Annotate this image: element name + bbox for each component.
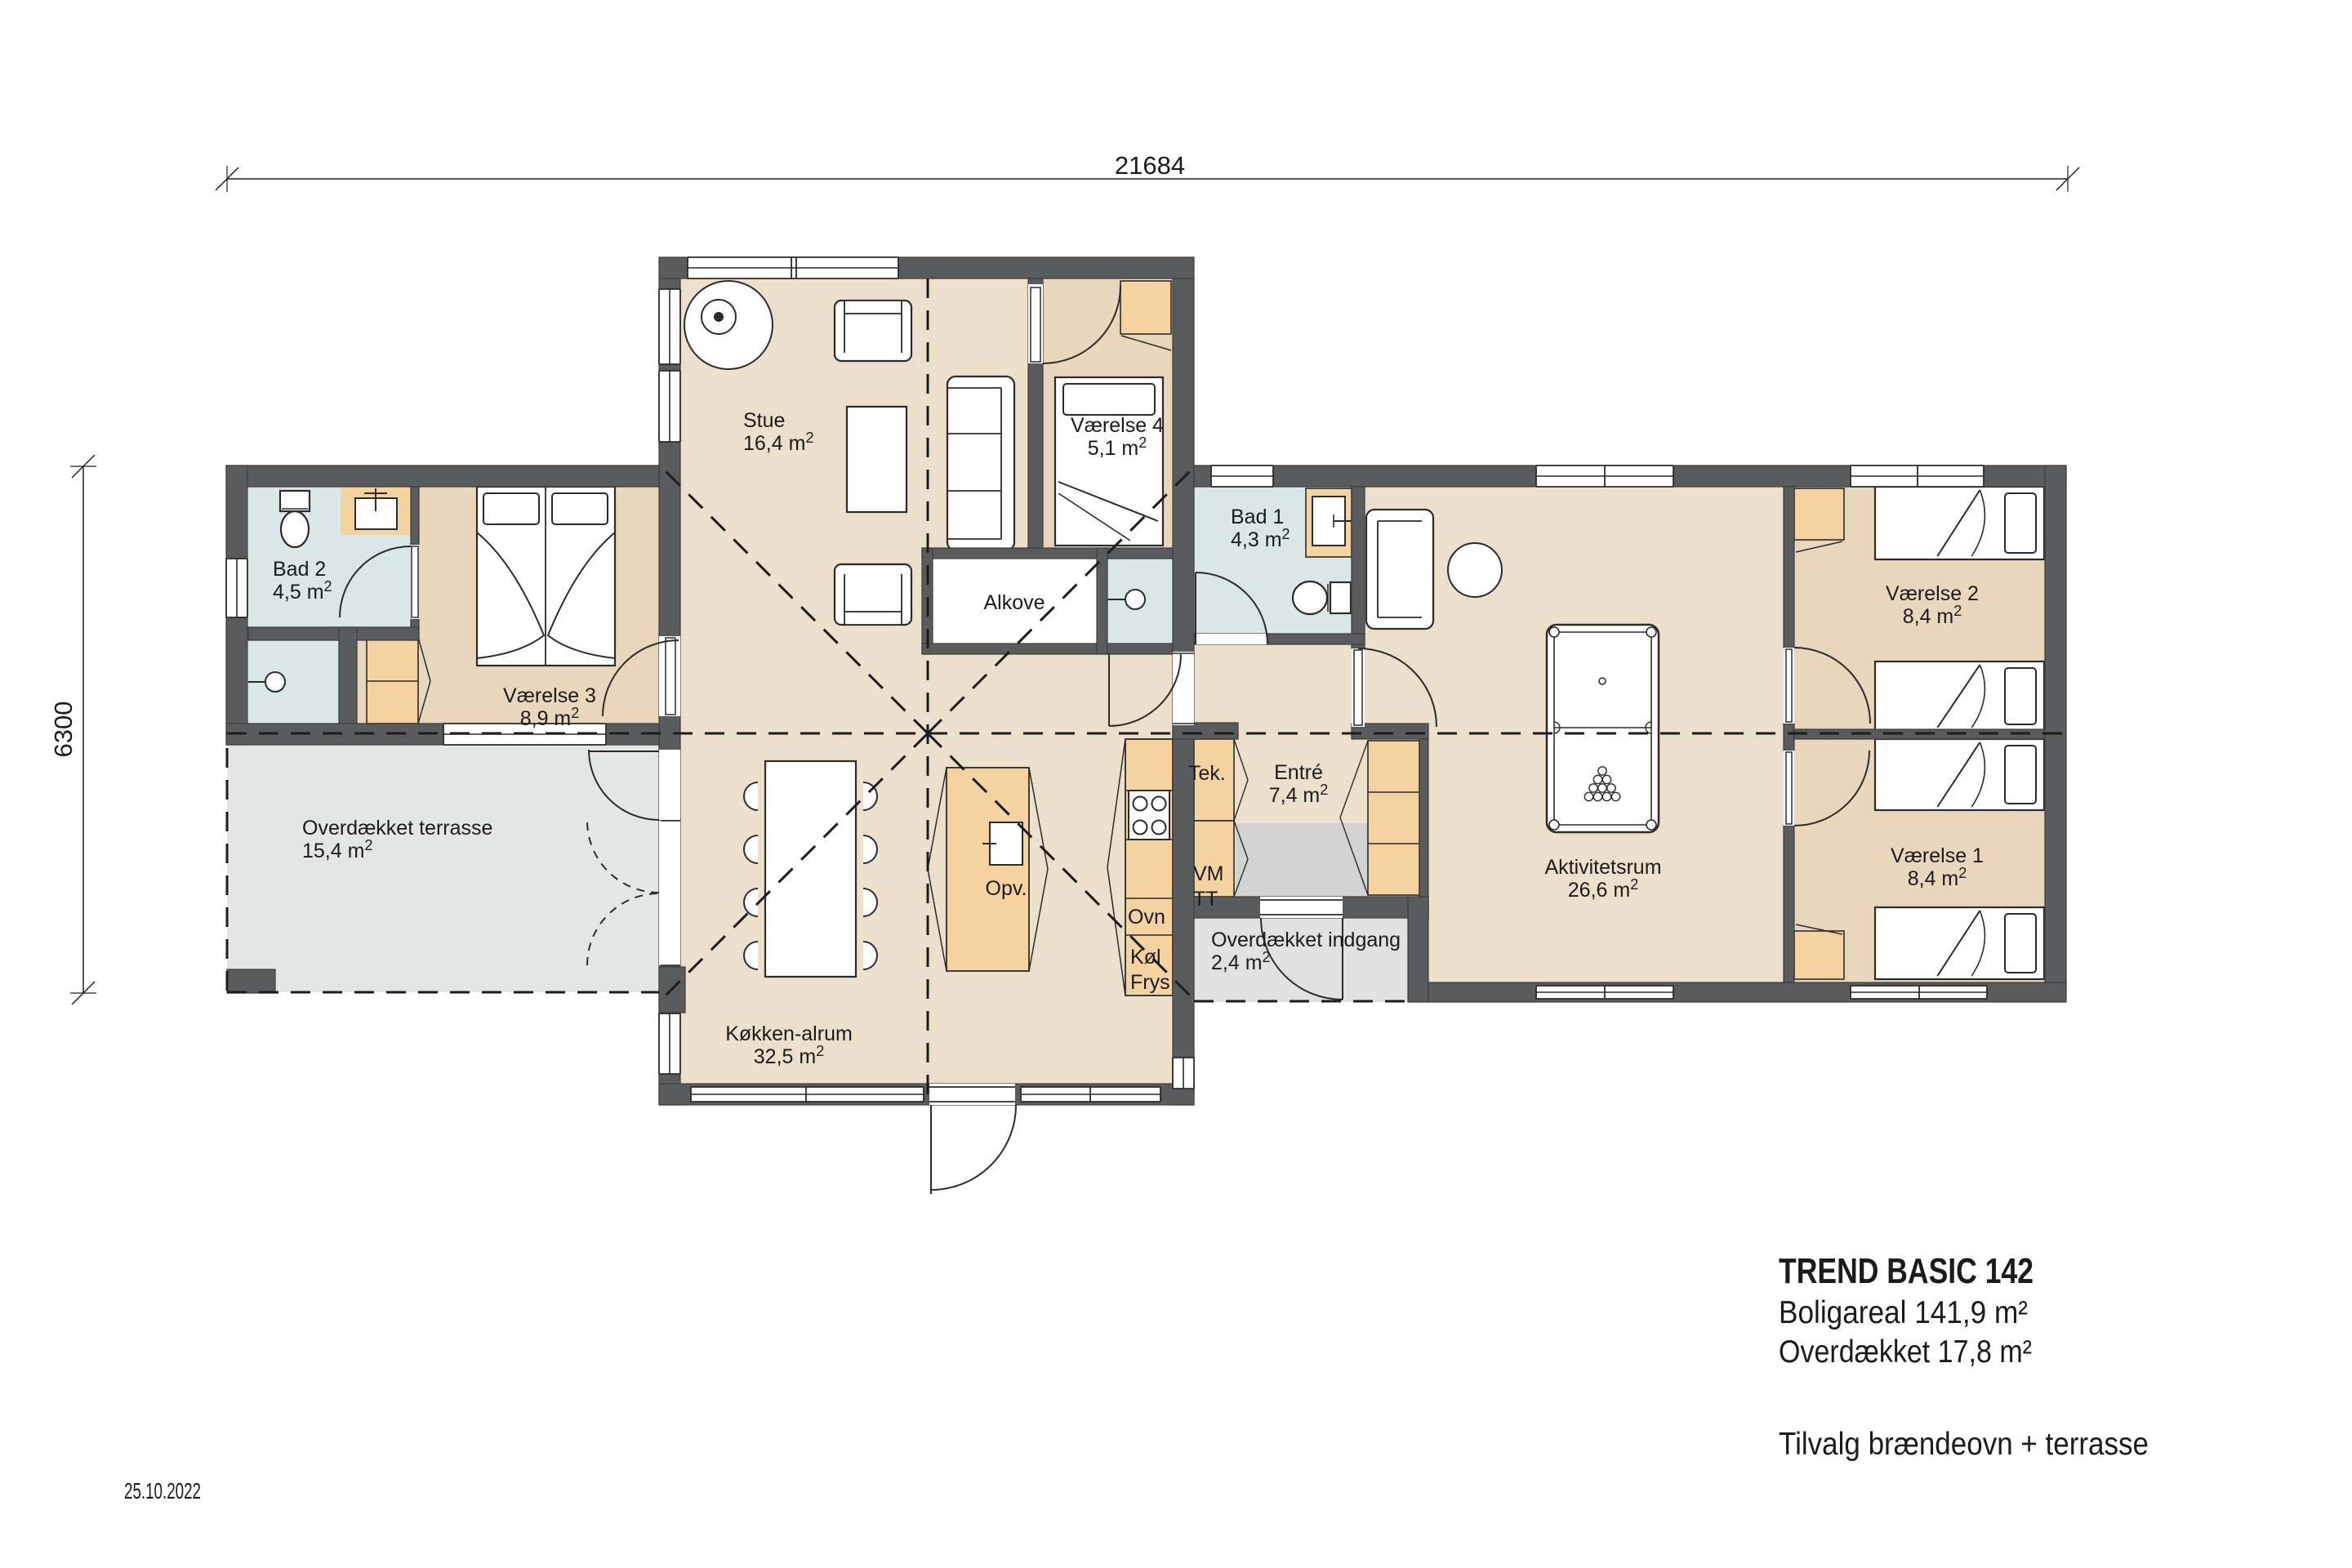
svg-text:Køkken-alrum: Køkken-alrum (725, 1022, 853, 1045)
svg-text:Bad 1: Bad 1 (1231, 506, 1284, 528)
svg-text:5,1 m2: 5,1 m2 (1088, 434, 1147, 460)
svg-text:Bad 2: Bad 2 (273, 558, 326, 581)
svg-text:Opv.: Opv. (986, 877, 1027, 900)
svg-text:VM: VM (1193, 862, 1224, 885)
svg-text:Værelse 1: Værelse 1 (1891, 844, 1984, 867)
svg-text:15,4 m2: 15,4 m2 (302, 837, 372, 862)
svg-text:Alkove: Alkove (983, 591, 1045, 614)
svg-text:Overdækket indgang: Overdækket indgang (1211, 929, 1401, 951)
svg-text:Køl: Køl (1130, 946, 1161, 969)
svg-text:32,5 m2: 32,5 m2 (754, 1043, 824, 1068)
svg-text:7,4 m2: 7,4 m2 (1269, 782, 1329, 807)
svg-text:21684: 21684 (1115, 151, 1185, 180)
svg-text:Ovn: Ovn (1128, 906, 1165, 929)
svg-text:Værelse 2: Værelse 2 (1886, 582, 1979, 605)
svg-text:8,9 m2: 8,9 m2 (520, 705, 580, 730)
svg-text:6300: 6300 (49, 702, 78, 758)
svg-text:Overdækket 17,8 m²: Overdækket 17,8 m² (1779, 1334, 2032, 1370)
svg-text:Boligareal 141,9 m²: Boligareal 141,9 m² (1779, 1295, 2028, 1330)
svg-text:25.10.2022: 25.10.2022 (124, 1478, 201, 1503)
svg-text:TREND BASIC 142: TREND BASIC 142 (1779, 1251, 2033, 1291)
svg-text:16,4 m2: 16,4 m2 (743, 430, 813, 455)
svg-text:Entré: Entré (1274, 761, 1323, 784)
svg-text:Overdækket terrasse: Overdækket terrasse (302, 817, 492, 840)
svg-text:Tek.: Tek. (1188, 762, 1226, 785)
svg-text:Tilvalg brændeovn + terrasse: Tilvalg brændeovn + terrasse (1779, 1427, 2149, 1462)
svg-text:Stue: Stue (743, 409, 785, 432)
svg-text:Aktivitetsrum: Aktivitetsrum (1544, 856, 1661, 879)
svg-text:4,5 m2: 4,5 m2 (273, 578, 332, 604)
svg-text:Frys: Frys (1130, 971, 1170, 994)
svg-text:2,4 m2: 2,4 m2 (1211, 949, 1271, 974)
svg-text:Værelse 3: Værelse 3 (503, 684, 596, 707)
svg-text:8,4 m2: 8,4 m2 (1908, 865, 1967, 890)
svg-text:8,4 m2: 8,4 m2 (1903, 603, 1962, 628)
svg-text:4,3 m2: 4,3 m2 (1231, 526, 1290, 551)
svg-text:TT: TT (1193, 888, 1218, 911)
svg-text:Værelse 4: Værelse 4 (1071, 414, 1164, 437)
svg-text:26,6 m2: 26,6 m2 (1568, 876, 1638, 902)
